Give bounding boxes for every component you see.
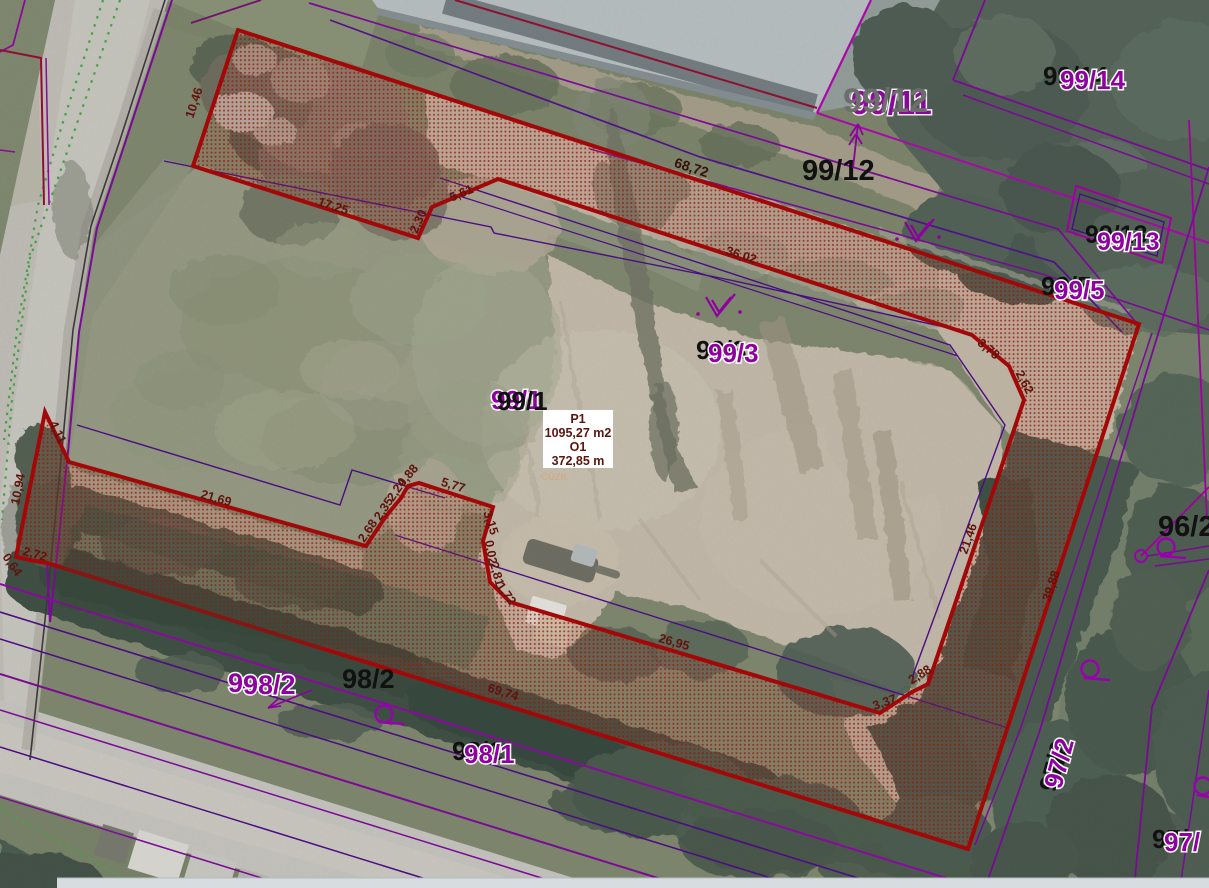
svg-text:98/1: 98/1 [464, 739, 515, 769]
svg-text:97/: 97/ [1164, 827, 1200, 857]
svg-text:99/13: 99/13 [1097, 228, 1160, 256]
svg-text:98/2: 98/2 [243, 670, 296, 700]
svg-text:99/12: 99/12 [802, 155, 875, 187]
svg-text:1095,27 m2: 1095,27 m2 [545, 426, 612, 440]
svg-text:99/3: 99/3 [708, 338, 759, 368]
svg-text:P1: P1 [570, 412, 585, 426]
svg-text:99/1: 99/1 [497, 386, 548, 416]
svg-text:98/2: 98/2 [342, 664, 395, 694]
svg-text:99/14: 99/14 [1060, 65, 1126, 95]
svg-text:372,85 m: 372,85 m [552, 454, 605, 468]
svg-text:99/12: 99/12 [843, 82, 928, 120]
svg-text:99/5: 99/5 [1054, 275, 1105, 305]
svg-text:9: 9 [228, 668, 243, 698]
svg-text:ČÚZK: ČÚZK [541, 471, 568, 483]
svg-text:O1: O1 [570, 440, 587, 454]
